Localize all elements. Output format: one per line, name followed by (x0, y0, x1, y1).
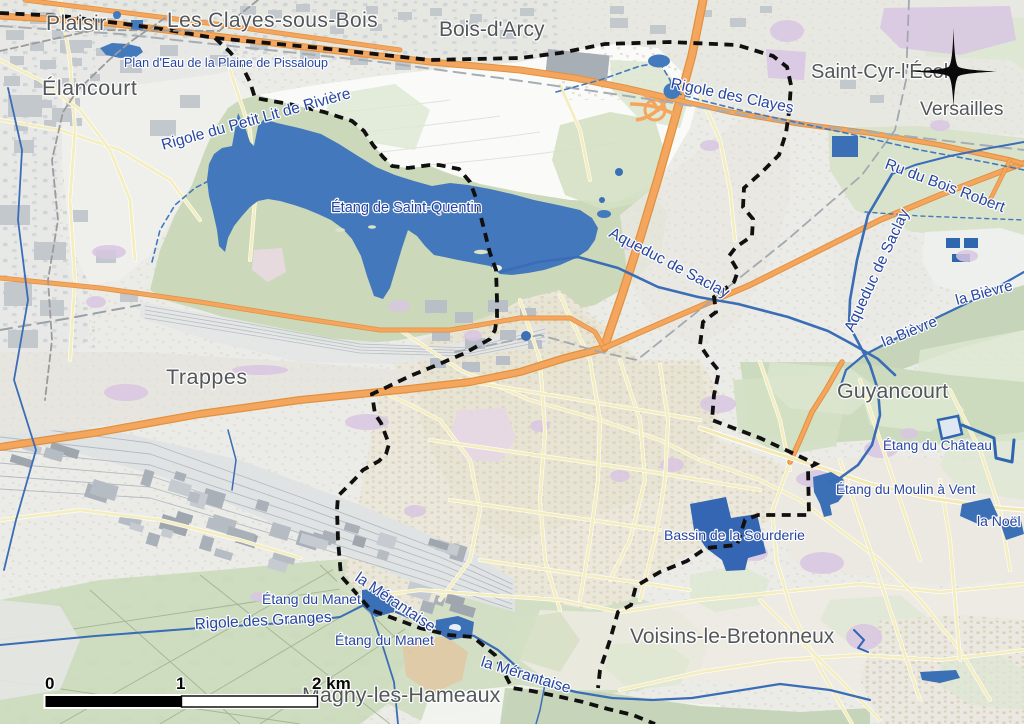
svg-text:Plan d'Eau de la Plaine de Pis: Plan d'Eau de la Plaine de Pissaloup (124, 56, 328, 70)
svg-text:2 km: 2 km (312, 674, 351, 693)
svg-text:la Noël: la Noël (977, 513, 1021, 529)
svg-text:Étang du Moulin à Vent: Étang du Moulin à Vent (836, 482, 976, 497)
svg-text:Élancourt: Élancourt (42, 75, 137, 100)
svg-text:Étang de Saint-Quentin: Étang de Saint-Quentin (331, 199, 482, 216)
svg-text:Trappes: Trappes (166, 365, 248, 389)
svg-text:1: 1 (176, 674, 185, 693)
svg-text:Versailles: Versailles (920, 98, 1004, 120)
svg-text:Étang du Manet: Étang du Manet (262, 591, 361, 607)
svg-text:Étang du Château: Étang du Château (883, 438, 992, 453)
svg-text:Guyancourt: Guyancourt (837, 379, 948, 403)
svg-text:0: 0 (45, 674, 54, 693)
svg-text:Plaisir: Plaisir (46, 12, 107, 35)
svg-text:Bois-d'Arcy: Bois-d'Arcy (439, 18, 545, 41)
svg-text:Voisins-le-Bretonneux: Voisins-le-Bretonneux (630, 625, 835, 648)
svg-text:Les Clayes-sous-Bois: Les Clayes-sous-Bois (167, 9, 378, 32)
svg-text:Bassin de la Sourderie: Bassin de la Sourderie (664, 527, 805, 543)
svg-text:Étang du Manet: Étang du Manet (335, 632, 434, 648)
